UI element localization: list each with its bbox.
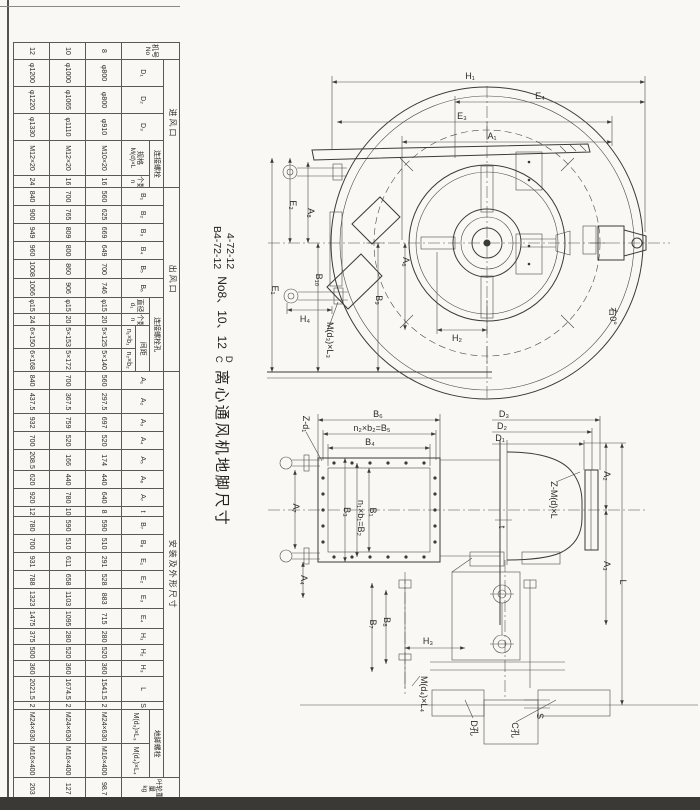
cell-b4: 960 — [14, 242, 50, 260]
cell-a6: 440 — [50, 471, 86, 489]
header-install-group: 安装及外形尺寸 — [164, 372, 180, 778]
cell-a2: 367.5 — [50, 390, 86, 414]
side-view: B₆ n₂×b₂=B₅ B₄ Z-d₁ B₃ n₁×b₁=B₂ B₁ A₇ — [268, 409, 698, 744]
cell-l: 1541.5 — [86, 677, 122, 702]
header-b5: B₅ — [122, 260, 164, 279]
cell-n2b2: 6×168 — [14, 349, 50, 372]
callout-d-hole: D孔 — [469, 720, 479, 736]
cell-hole_n: 20 — [50, 314, 86, 326]
dim-s: S — [535, 713, 545, 719]
cell-b3: 949 — [14, 224, 50, 242]
cell-d1: φ1000 — [50, 60, 86, 87]
cell-h1: 375 — [14, 629, 50, 645]
dim-b8: B₈ — [382, 617, 392, 627]
cell-a3: 697 — [86, 414, 122, 432]
header-a5: A₅ — [122, 450, 164, 471]
cell-b2: 900 — [14, 206, 50, 224]
cell-e1: 931 — [14, 553, 50, 571]
cell-h3: 360 — [86, 661, 122, 677]
cell-d3: φ1330 — [14, 114, 50, 141]
header-b2: B₂ — [122, 206, 164, 224]
cell-b8: 700 — [14, 535, 50, 553]
cell-d1: φ800 — [86, 60, 122, 87]
cell-n2b2: 5×140 — [86, 349, 122, 372]
cell-t: 10 — [50, 507, 86, 517]
header-a7: A₇ — [122, 489, 164, 507]
cell-n2b2: 5×172 — [50, 349, 86, 372]
dim-b5: n₂×b₂=B₅ — [353, 423, 391, 433]
dim-h2: H₂ — [452, 333, 462, 343]
cell-fb2: M16×400 — [14, 744, 50, 778]
cell-b8: 510 — [86, 535, 122, 553]
cell-no: 8 — [86, 43, 122, 60]
cell-a4: 520 — [86, 432, 122, 450]
cell-a1: 840 — [14, 372, 50, 390]
cell-h2: 520 — [50, 645, 86, 661]
rotation-mark: 右0° — [608, 307, 619, 325]
cell-fb1: M24×630 — [50, 710, 86, 744]
cell-fb1: M24×630 — [14, 710, 50, 744]
table-row-no12: 12φ1200φ1220φ1330M12×2024840900949960100… — [14, 43, 50, 810]
cell-d2: φ1065 — [50, 87, 86, 114]
cell-h3: 360 — [50, 661, 86, 677]
dim-b7: B₇ — [368, 619, 378, 628]
dim-e4: E₄ — [535, 91, 545, 101]
cell-d3: φ1110 — [50, 114, 86, 141]
dim-e2: E₂ — [288, 200, 298, 210]
cell-bolt_n: 16 — [86, 176, 122, 188]
cell-e4: 1475 — [14, 609, 50, 629]
dimension-table: 机号 No 进风口 出风口 安装及外形尺寸 叶轮重量 kg 风机重量(不含电机)… — [13, 42, 180, 810]
cell-a4: 700 — [14, 432, 50, 450]
dim-a6: A₆ — [401, 257, 411, 267]
cell-a5: 208.5 — [14, 450, 50, 471]
cell-e3: 1103 — [50, 589, 86, 609]
cell-a7: 780 — [50, 489, 86, 507]
cell-l: 2021.5 — [14, 677, 50, 702]
cell-t: 8 — [86, 507, 122, 517]
cell-e4: 715 — [86, 609, 122, 629]
dim-d1: D₁ — [495, 433, 505, 443]
dim-l: L — [618, 579, 628, 584]
cell-a1: 700 — [50, 372, 86, 390]
cell-a6: 620 — [14, 471, 50, 489]
cell-a3: 932 — [14, 414, 50, 432]
header-hole-count: 个数 n — [122, 314, 150, 326]
cell-a3: 759 — [50, 414, 86, 432]
header-machine-no: 机号 No — [122, 43, 180, 60]
callout-md4l4: M(d₄)×L₄ — [419, 676, 429, 712]
dim-a2: A₂ — [602, 471, 612, 481]
header-d3: D₃ — [122, 114, 164, 141]
cell-b2: 625 — [86, 206, 122, 224]
cell-b3: 669 — [86, 224, 122, 242]
cell-d2: φ1220 — [14, 87, 50, 114]
cell-e4: 1095 — [50, 609, 86, 629]
header-hole-dia: 直径 d₁ — [122, 298, 150, 314]
cell-hole_n: 24 — [14, 314, 50, 326]
cell-bolt_n: 24 — [14, 176, 50, 188]
callout-md3l3: M(d₃)×L₃ — [325, 322, 335, 358]
cell-b8: 510 — [50, 535, 86, 553]
cell-a5: 174 — [86, 450, 122, 471]
cell-e1: 291 — [86, 553, 122, 571]
cell-s: 2 — [86, 702, 122, 710]
callout-c-hole: C孔 — [510, 722, 520, 738]
callout-zd1: Z-d₁ — [301, 416, 311, 433]
dim-d2: D₂ — [497, 421, 507, 431]
header-s: S — [122, 702, 164, 710]
header-bolt-spec: 规格 M(d)×L — [122, 141, 150, 176]
drawing-sheet: H₁ E₄ E₃ A₁ E₁ E₂ A₈ B₁₀ B₉ A₆ — [0, 0, 700, 810]
model-numbers: 4-72-12 B4-72-12 — [210, 226, 235, 269]
cell-fb2: M16×400 — [86, 744, 122, 778]
cell-hole_d: φ15 — [14, 298, 50, 314]
cell-b7: 590 — [50, 517, 86, 535]
header-b3: B₃ — [122, 224, 164, 242]
header-a6: A₆ — [122, 471, 164, 489]
dim-a1: A₁ — [487, 131, 496, 141]
size-range: No8、10、12 — [215, 276, 232, 349]
cell-b1: 840 — [14, 188, 50, 206]
cell-d3: φ910 — [86, 114, 122, 141]
header-inlet-group: 进风口 — [164, 60, 180, 188]
dim-h4: H₄ — [300, 314, 310, 324]
header-h3: H₃ — [122, 661, 164, 677]
dim-a8: A₈ — [306, 208, 316, 218]
cell-a2: 297.5 — [86, 390, 122, 414]
cell-fb1: M24×630 — [86, 710, 122, 744]
header-conn-bolt: 连接螺栓 — [150, 141, 164, 188]
header-d2: D₂ — [122, 87, 164, 114]
header-b8: B₈ — [122, 535, 164, 553]
header-h2: H₂ — [122, 645, 164, 661]
header-b6: B₆ — [122, 279, 164, 298]
cell-no: 12 — [14, 43, 50, 60]
dim-a3: A₃ — [602, 561, 612, 571]
dim-a7: A₇ — [291, 503, 301, 512]
cell-a6: 440 — [86, 471, 122, 489]
cell-b4: 800 — [50, 242, 86, 260]
cell-b5: 860 — [50, 260, 86, 279]
cell-e2: 658 — [50, 571, 86, 589]
dim-h1: H₁ — [465, 71, 475, 81]
cell-bolt_spec: M12×20 — [50, 141, 86, 176]
header-b4: B₄ — [122, 242, 164, 260]
cell-b6: 906 — [50, 279, 86, 298]
header-e2: E₂ — [122, 571, 164, 589]
header-h1: H₁ — [122, 629, 164, 645]
cell-hole_d: φ15 — [50, 298, 86, 314]
header-bolt-count: 个数 n — [122, 176, 150, 188]
cell-h2: 500 — [14, 645, 50, 661]
sheet-border-left — [7, 0, 9, 810]
header-l: L — [122, 677, 164, 702]
header-t: t — [122, 507, 164, 517]
cell-b3: 809 — [50, 224, 86, 242]
header-a2: A₂ — [122, 390, 164, 414]
header-e3: E₃ — [122, 589, 164, 609]
sheet-border-top — [0, 6, 180, 7]
dim-b1: B₁ — [368, 507, 378, 516]
cell-b6: 746 — [86, 279, 122, 298]
cell-s: 2 — [14, 702, 50, 710]
cell-b6: 1066 — [14, 279, 50, 298]
sheet-border-bottom — [0, 797, 700, 810]
cell-s: 2 — [50, 702, 86, 710]
cell-b5: 1008 — [14, 260, 50, 279]
dim-h3: H₃ — [423, 636, 433, 646]
cell-l: 1674.5 — [50, 677, 86, 702]
cell-e3: 1323 — [14, 589, 50, 609]
cell-fb2: M16×400 — [50, 744, 86, 778]
cell-e3: 883 — [86, 589, 122, 609]
cell-h1: 280 — [50, 629, 86, 645]
cell-t: 12 — [14, 507, 50, 517]
cell-d1: φ1200 — [14, 60, 50, 87]
dimension-table-block: 机号 No 进风口 出风口 安装及外形尺寸 叶轮重量 kg 风机重量(不含电机)… — [14, 42, 180, 776]
header-n2b2: n₂×b₂ — [122, 349, 136, 372]
dim-a4: A₄ — [299, 575, 309, 585]
header-e4: E₄ — [122, 609, 164, 629]
header-anchor-bolt: 地脚螺栓 — [150, 710, 164, 778]
cell-e2: 788 — [14, 571, 50, 589]
cell-hole_n: 20 — [86, 314, 122, 326]
cell-n1b1: 5×125 — [86, 326, 122, 349]
header-d1: D₁ — [122, 60, 164, 87]
cell-bolt_spec: M10×20 — [86, 141, 122, 176]
dim-b10: B₁₀ — [314, 274, 324, 287]
dim-e1: E₁ — [270, 285, 280, 294]
cell-b7: 590 — [86, 517, 122, 535]
cell-d2: φ800 — [86, 87, 122, 114]
title-block: 4-72-12 B4-72-12 No8、10、12 D C 离心通风机地脚尺寸 — [183, 226, 263, 626]
cell-b4: 649 — [86, 242, 122, 260]
cell-n1b1: 6×150 — [14, 326, 50, 349]
dim-b9: B₉ — [374, 295, 384, 305]
cell-b1: 560 — [86, 188, 122, 206]
header-conn-bolt-hole: 连接螺栓孔 — [150, 298, 164, 372]
header-outlet-group: 出风口 — [164, 188, 180, 372]
cell-a7: 920 — [14, 489, 50, 507]
cell-hole_d: φ15 — [86, 298, 122, 314]
cell-bolt_spec: M12×20 — [14, 141, 50, 176]
dim-e3: E₃ — [457, 111, 467, 121]
dim-b6: B₆ — [373, 409, 383, 419]
cell-h2: 520 — [86, 645, 122, 661]
header-a3: A₃ — [122, 414, 164, 432]
dim-b3: B₃ — [342, 507, 352, 517]
header-b1: B₁ — [122, 188, 164, 206]
front-view: H₁ E₄ E₃ A₁ E₁ E₂ A₈ B₁₀ B₉ A₆ — [267, 71, 670, 400]
cell-a7: 640 — [86, 489, 122, 507]
cell-a4: 520 — [50, 432, 86, 450]
cell-h3: 360 — [14, 661, 50, 677]
table-row-no10: 10φ1000φ1065φ1110M12×2016700765809800860… — [50, 43, 86, 810]
cell-b5: 700 — [86, 260, 122, 279]
page-title: 离心通风机地脚尺寸 — [213, 370, 234, 528]
cell-b7: 780 — [14, 517, 50, 535]
dim-b4: B₄ — [365, 437, 375, 447]
cell-bolt_n: 16 — [50, 176, 86, 188]
cell-a5: 166 — [50, 450, 86, 471]
table-row-no8: 8φ800φ800φ910M10×2016560625669649700746φ… — [86, 43, 122, 810]
dim-b2: n₁×b₁=B₂ — [356, 500, 366, 537]
callout-zmdl: Z-M(d)×L — [549, 481, 559, 518]
cell-e1: 611 — [50, 553, 86, 571]
cell-a1: 560 — [86, 372, 122, 390]
cell-no: 10 — [50, 43, 86, 60]
model-variants: D C — [213, 356, 234, 363]
header-fb1: M(d₃)×L₃ — [122, 710, 150, 744]
cell-e2: 528 — [86, 571, 122, 589]
cell-n1b1: 5×153 — [50, 326, 86, 349]
header-spacing: 间距 — [136, 326, 150, 372]
header-b7: B₇ — [122, 517, 164, 535]
header-n1b1: n₁×b₁ — [122, 326, 136, 349]
cell-b2: 765 — [50, 206, 86, 224]
dim-t: t — [497, 526, 507, 529]
header-a1: A₁ — [122, 372, 164, 390]
header-a4: A₄ — [122, 432, 164, 450]
header-e1: E₁ — [122, 553, 164, 571]
cell-b1: 700 — [50, 188, 86, 206]
dim-d3: D₃ — [499, 409, 509, 419]
cell-h1: 280 — [86, 629, 122, 645]
header-fb2: M(d₄)×L₄ — [122, 744, 150, 778]
cell-a2: 437.5 — [14, 390, 50, 414]
